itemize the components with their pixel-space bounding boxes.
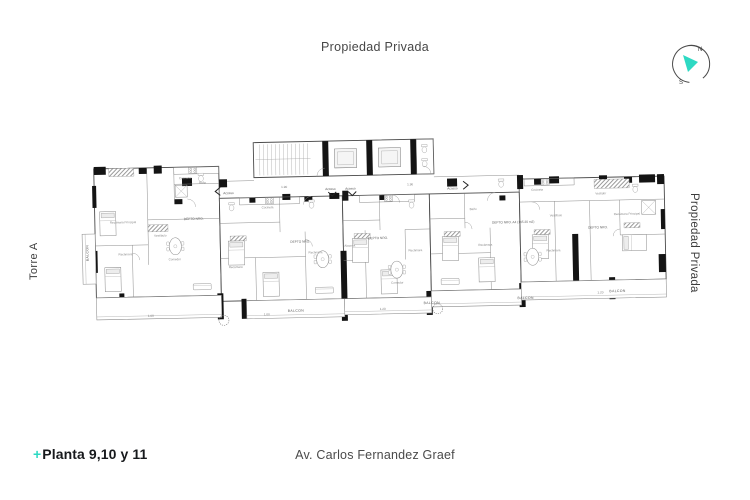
dimension-label: 1.90 bbox=[281, 185, 287, 189]
dimension-label: 1.90 bbox=[407, 182, 413, 186]
room-label: Vestíbulo bbox=[154, 233, 167, 237]
compass-south-label: S bbox=[679, 80, 683, 86]
depto-label: DEPTO NRO. bbox=[184, 217, 204, 221]
acceso-label: Acceso bbox=[447, 186, 458, 190]
room-label: Baño bbox=[199, 181, 206, 185]
room-label: Vestíbulo bbox=[550, 213, 563, 217]
street-label: Av. Carlos Fernandez Graef bbox=[0, 448, 750, 462]
right-propiedad-privada-label: Propiedad Privada bbox=[688, 193, 700, 308]
room-label: Alacena bbox=[344, 244, 355, 248]
compass-needle-icon bbox=[683, 55, 698, 72]
room-label: Recámara Principal bbox=[614, 212, 641, 217]
balcon-label: BALCON bbox=[424, 301, 441, 305]
room-label: Recámara Principal bbox=[110, 220, 137, 225]
room-label: Recámara bbox=[229, 265, 243, 269]
room-label: Recámara bbox=[308, 250, 322, 254]
page: { "page": { "top_label": "Propiedad Priv… bbox=[0, 0, 750, 500]
floor-plan: Acceso Acceso Acceso Acceso BALCON BALCO… bbox=[80, 120, 680, 335]
room-label: Recámara bbox=[118, 252, 132, 256]
compass-north-label: N bbox=[698, 47, 702, 53]
compass-rose-icon: N S bbox=[668, 41, 714, 87]
acceso-label: Acceso bbox=[345, 186, 356, 190]
room-label: Vestidor bbox=[595, 191, 606, 195]
depto-label: DEPTO NRO. bbox=[368, 236, 388, 240]
room-label: Baño bbox=[470, 207, 477, 211]
room-label: Cocineta bbox=[531, 188, 543, 192]
depto-label: DEPTO NRO. bbox=[588, 225, 608, 229]
room-label: Cocineta bbox=[179, 176, 191, 180]
balcon-label: BALCON bbox=[85, 245, 89, 262]
top-propiedad-privada-label: Propiedad Privada bbox=[0, 40, 750, 54]
dimension-label: 1.20 bbox=[597, 290, 603, 294]
dimension-label: 1.20 bbox=[380, 307, 386, 311]
balcon-label: BALCON bbox=[609, 289, 626, 293]
balcon-label: BALCON bbox=[288, 309, 305, 313]
dimension-label: 1.00 bbox=[264, 312, 270, 316]
room-label: Cocineta bbox=[262, 205, 274, 209]
room-label: Recámara bbox=[546, 248, 560, 252]
dimension-label: 1.00 bbox=[148, 314, 154, 318]
acceso-label: Acceso bbox=[325, 187, 336, 191]
depto-label: DEPTO NRO. bbox=[290, 239, 310, 243]
room-label: Recámara bbox=[408, 248, 422, 252]
acceso-label: Acceso bbox=[223, 191, 234, 195]
compass: N S bbox=[668, 41, 714, 87]
room-label: Comedor bbox=[169, 257, 181, 261]
torre-a-label: Torre A bbox=[28, 210, 40, 280]
balcon-label: BALCON bbox=[517, 296, 534, 300]
room-label: Recámara bbox=[478, 243, 492, 247]
room-label: Comedor bbox=[391, 281, 403, 285]
